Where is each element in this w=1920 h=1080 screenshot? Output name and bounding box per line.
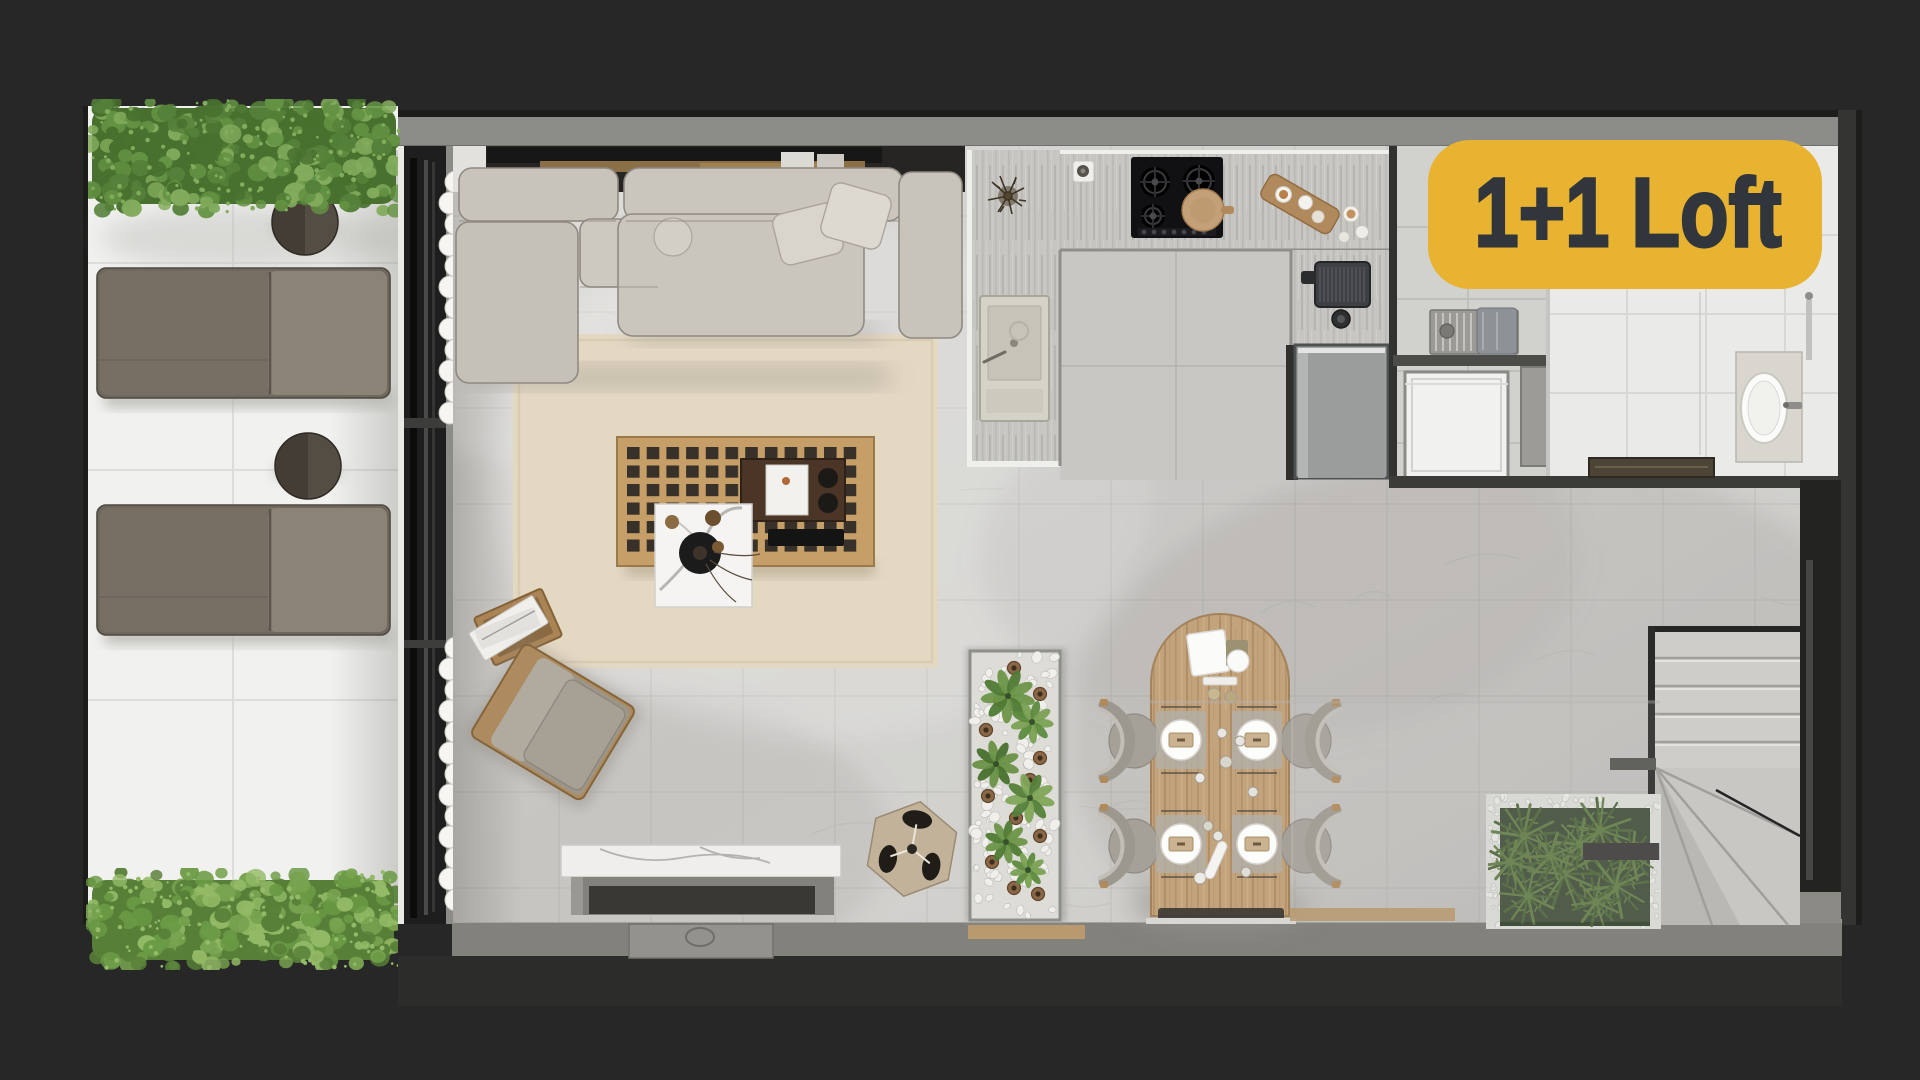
svg-text:1+1 Loft: 1+1 Loft xyxy=(1474,159,1781,267)
